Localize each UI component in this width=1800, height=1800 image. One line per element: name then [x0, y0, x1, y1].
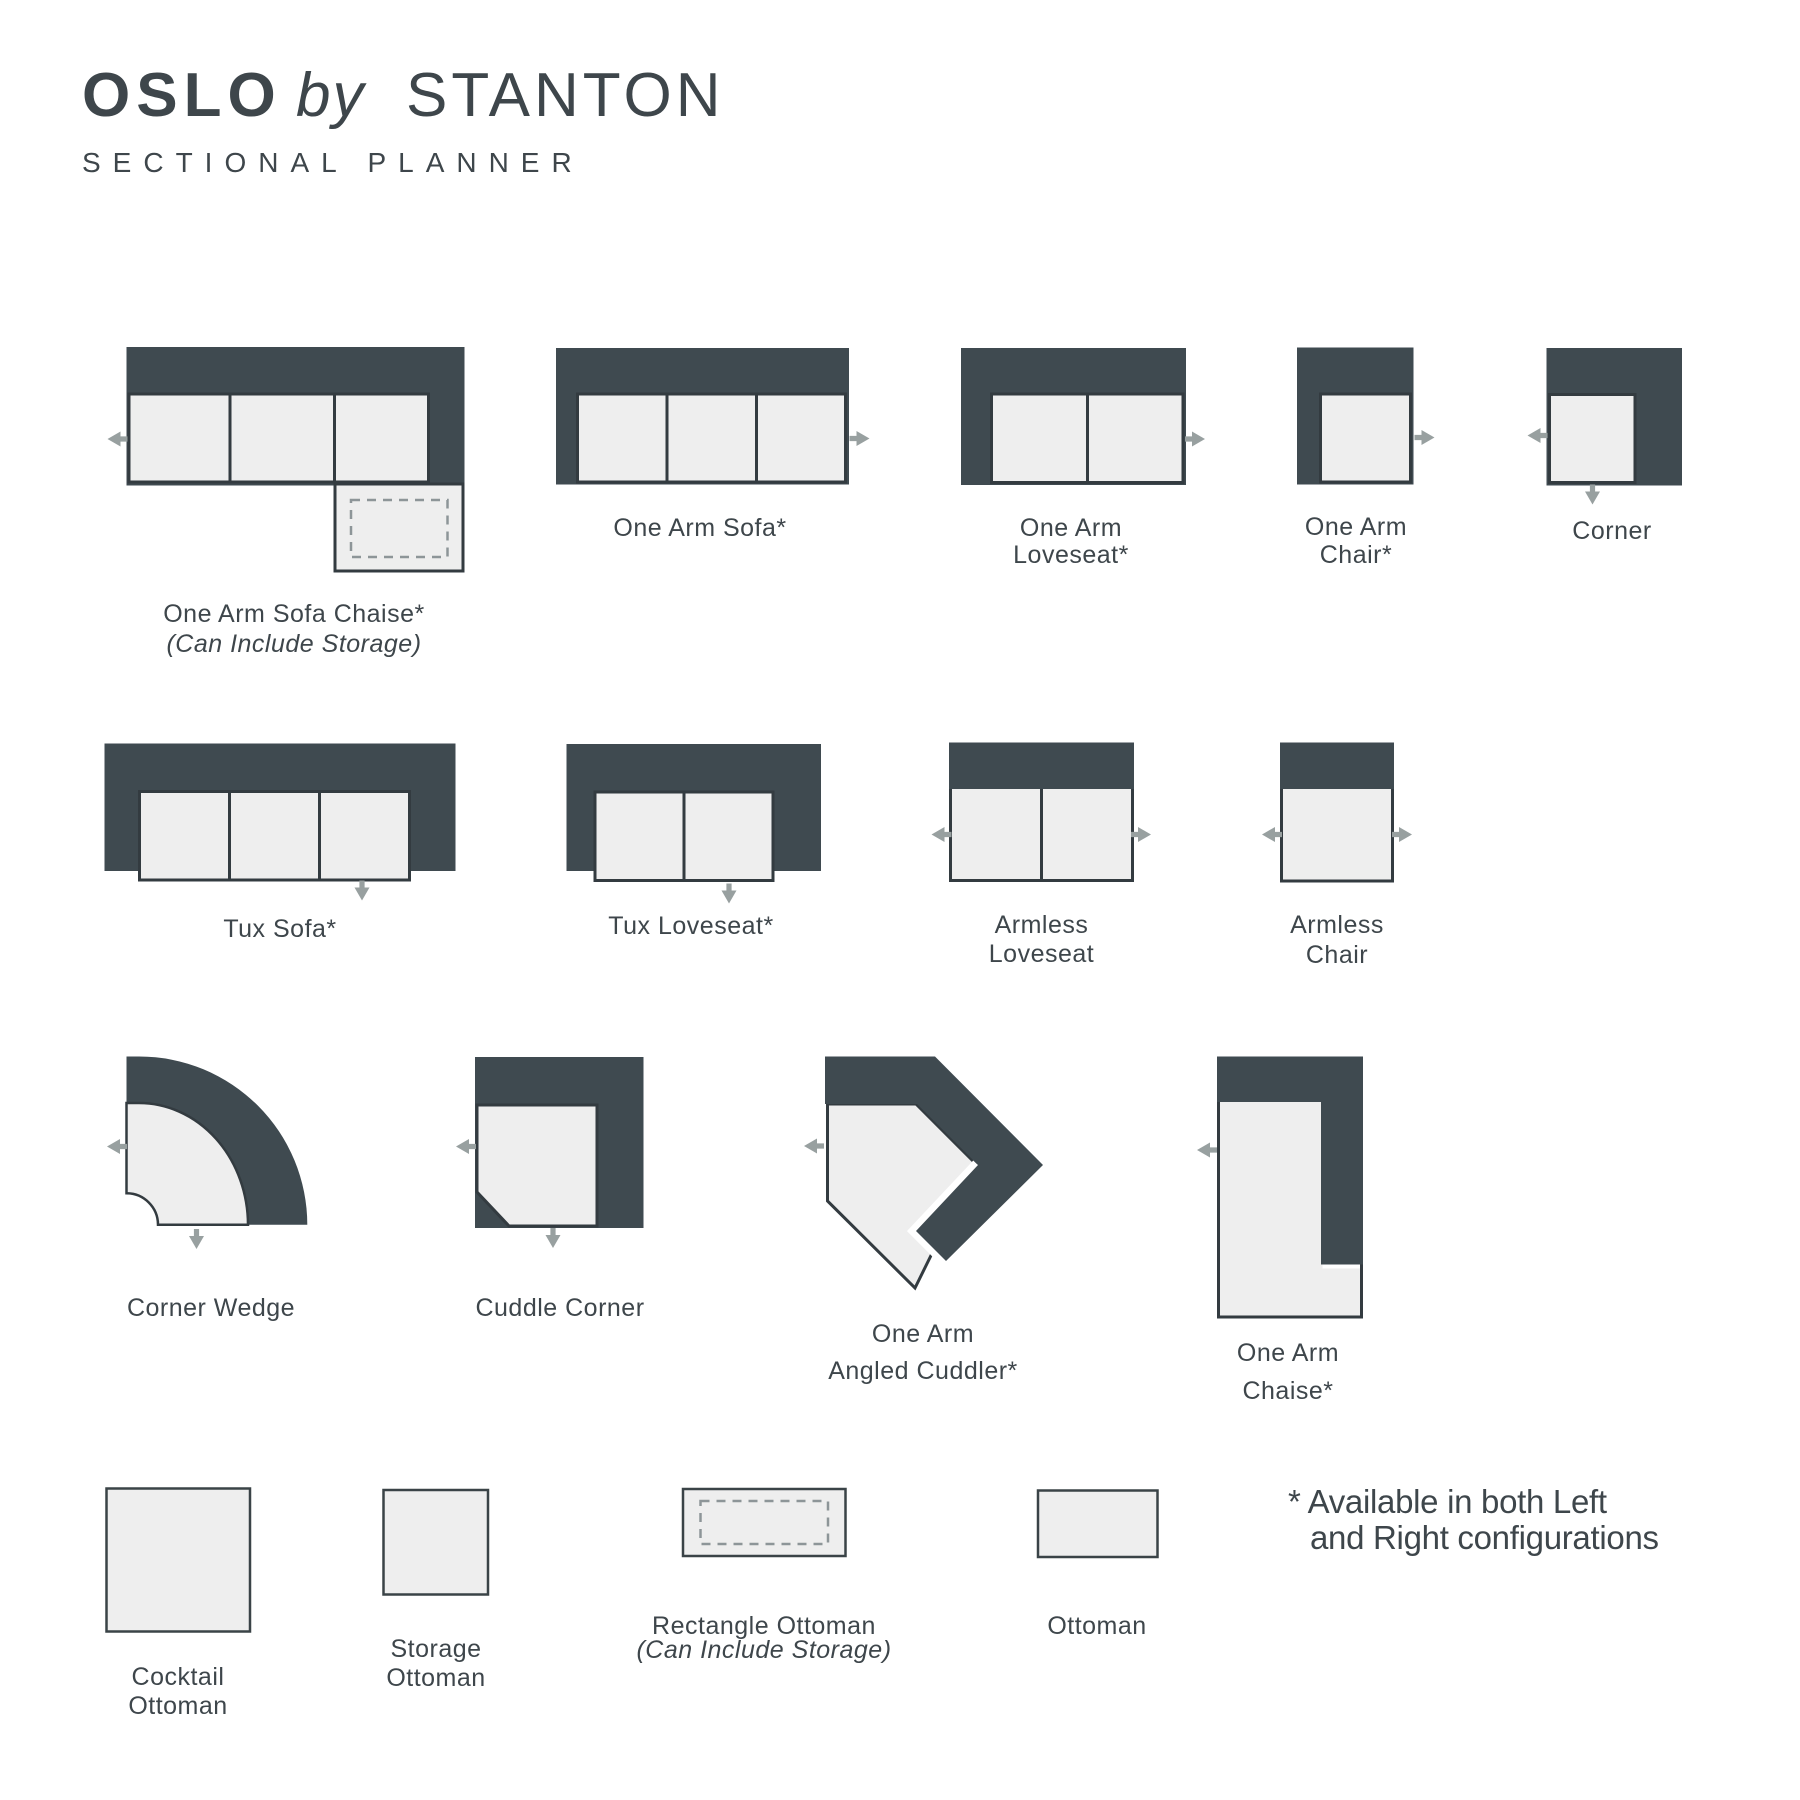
svg-text:One Arm: One Arm — [872, 1320, 974, 1348]
svg-text:(Can Include Storage): (Can Include Storage) — [636, 1636, 891, 1664]
svg-text:Storage: Storage — [390, 1635, 481, 1663]
svg-text:Loveseat*: Loveseat* — [1013, 541, 1129, 569]
svg-text:One Arm: One Arm — [1237, 1339, 1339, 1367]
svg-text:Chair: Chair — [1306, 941, 1368, 969]
svg-text:Cuddle Corner: Cuddle Corner — [475, 1294, 644, 1322]
svg-text:One Arm Sofa Chaise*: One Arm Sofa Chaise* — [163, 600, 425, 628]
svg-text:Corner Wedge: Corner Wedge — [127, 1294, 295, 1322]
svg-text:STANTON: STANTON — [406, 61, 725, 130]
svg-text:Chair*: Chair* — [1320, 541, 1392, 569]
svg-text:Tux Sofa*: Tux Sofa* — [223, 915, 336, 943]
svg-text:and Right configurations: and Right configurations — [1310, 1519, 1659, 1556]
svg-text:by: by — [296, 61, 367, 130]
svg-text:(Can Include Storage): (Can Include Storage) — [166, 630, 421, 658]
svg-text:Armless: Armless — [995, 911, 1089, 939]
svg-text:Ottoman: Ottoman — [128, 1692, 227, 1720]
svg-text:SECTIONAL PLANNER: SECTIONAL PLANNER — [82, 147, 584, 178]
svg-text:One Arm: One Arm — [1305, 513, 1407, 541]
svg-text:Loveseat: Loveseat — [989, 940, 1094, 968]
svg-text:Cocktail: Cocktail — [132, 1663, 225, 1691]
svg-text:OSLO: OSLO — [82, 61, 282, 130]
svg-text:Corner: Corner — [1572, 517, 1651, 545]
svg-text:* Available in both Left: * Available in both Left — [1288, 1483, 1607, 1520]
svg-text:Ottoman: Ottoman — [1047, 1612, 1146, 1640]
svg-text:Tux Loveseat*: Tux Loveseat* — [608, 912, 773, 940]
svg-text:Chaise*: Chaise* — [1242, 1377, 1333, 1405]
svg-text:One Arm Sofa*: One Arm Sofa* — [613, 514, 786, 542]
svg-text:Armless: Armless — [1290, 911, 1384, 939]
svg-text:Ottoman: Ottoman — [386, 1664, 485, 1692]
svg-text:One Arm: One Arm — [1020, 514, 1122, 542]
svg-text:Angled Cuddler*: Angled Cuddler* — [828, 1357, 1018, 1385]
